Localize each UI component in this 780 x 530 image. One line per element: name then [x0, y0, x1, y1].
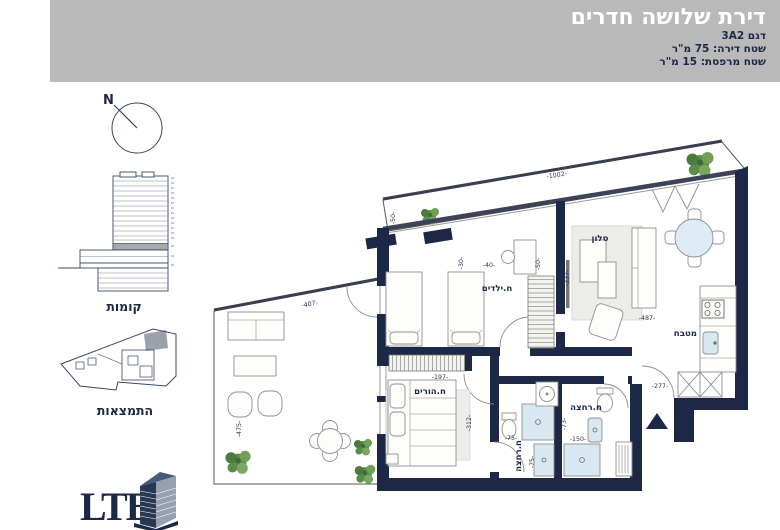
dim-living-width: -487- — [639, 315, 656, 322]
washing-machine — [536, 382, 558, 406]
dim-top-balcony-depth: -50- — [390, 212, 397, 225]
dining-set — [665, 209, 724, 267]
dim-balcony-width: -407- — [301, 300, 319, 310]
dim-balcony-depth: -475- — [236, 421, 243, 438]
round-table-set — [310, 421, 351, 462]
dim-entry-width: -277- — [652, 383, 669, 390]
living-room-label: סלון — [592, 234, 609, 244]
closet — [389, 355, 465, 371]
kitchen-label: מטבח — [674, 329, 697, 339]
pillow — [390, 384, 405, 408]
plant-icon — [354, 439, 372, 456]
pillow — [452, 332, 480, 344]
bed — [448, 272, 484, 346]
kids-room: ח.ילדים -40- -30- -50- — [386, 240, 554, 348]
desk — [514, 240, 536, 274]
dim-parents-depth: -312- — [466, 415, 473, 432]
kids-room-label: ח.ילדים — [482, 284, 513, 294]
pillow — [390, 332, 418, 344]
door-arc — [347, 287, 377, 317]
balcony-main: -407- -475- — [214, 279, 378, 484]
floor-plan: -1002- -50- -407- -475- — [0, 0, 780, 530]
coffee-table — [598, 262, 616, 298]
dim-bath1-width: -75- — [505, 435, 518, 442]
dining-table — [675, 219, 713, 257]
washing-machine — [616, 442, 632, 476]
entrance-arrow-icon — [646, 413, 668, 429]
folding-door — [652, 184, 699, 212]
plant-icon — [355, 465, 376, 484]
kitchen-counter — [700, 286, 736, 372]
plant-icon — [687, 152, 714, 177]
dim-kids-window: -40- — [483, 262, 496, 269]
sink — [588, 418, 602, 442]
pillow — [390, 412, 405, 436]
dim-bath2-width: -150- — [570, 436, 587, 443]
bed — [386, 272, 422, 346]
outdoor-sofa — [228, 312, 284, 340]
parents-room: ח.הורים -197- -312- — [386, 374, 473, 466]
kitchen-sink — [703, 332, 718, 354]
wardrobe — [528, 276, 554, 348]
kitchen: מטבח — [674, 286, 736, 397]
dim-bath2-depth: -73- — [561, 418, 568, 431]
dim-living-depth: -337- — [564, 270, 571, 287]
desk-chair — [502, 251, 515, 264]
dim-bath1-depth: -75- — [529, 456, 536, 469]
shower — [564, 444, 600, 476]
bathroom-1-label: ח.רחצה — [514, 440, 524, 472]
dim-kids-depth: -30- — [458, 257, 465, 270]
outdoor-table — [234, 356, 276, 376]
shower — [534, 444, 554, 476]
bathroom-2-label: ח.רחצה — [570, 403, 602, 413]
shower — [522, 404, 554, 440]
plant-icon — [225, 451, 250, 474]
fridge-cabinet — [678, 372, 722, 397]
outdoor-chair — [258, 391, 282, 416]
bench — [386, 454, 398, 464]
dim-closet-depth: -50- — [535, 258, 542, 271]
bathroom-2: ח.רחצה -73- -150- — [561, 388, 632, 476]
dim-parents-width: -197- — [432, 374, 449, 381]
bathroom-1: ח.רחצה -75- -75- — [502, 382, 558, 476]
sofa — [632, 228, 656, 308]
outdoor-chair — [228, 392, 252, 417]
parents-room-label: ח.הורים — [414, 387, 446, 397]
balcony-door-lintel — [423, 228, 453, 244]
